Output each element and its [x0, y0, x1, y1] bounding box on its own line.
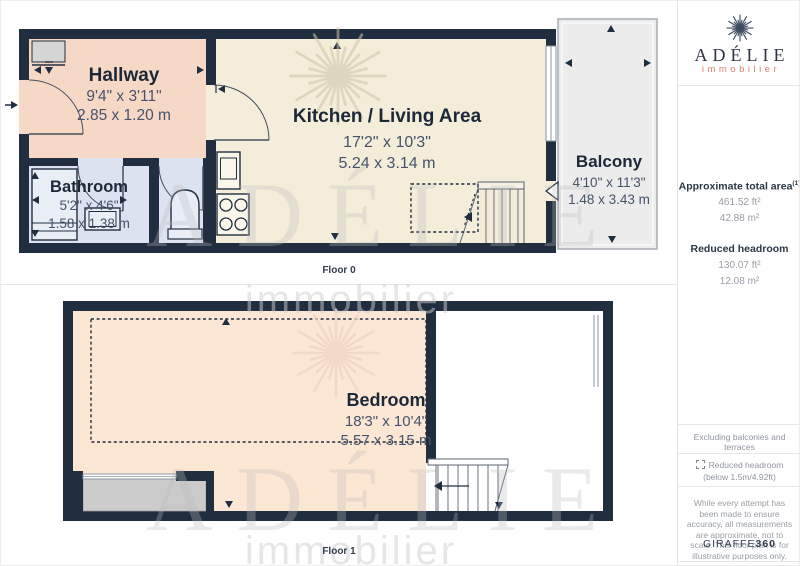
giraffe360-credit: GIRAFFE360 [678, 538, 800, 550]
reduced-headroom-legend: Reduced headroom [678, 460, 800, 470]
room-name: Kitchen / Living Area [236, 105, 538, 129]
kitchen-living-label: Kitchen / Living Area 17'2" x 10'3" 5.24… [236, 105, 538, 174]
exclusion-note: Excluding balconies and terraces [678, 432, 800, 452]
balcony-label: Balcony 4'10" x 11'3" 1.48 x 3.43 m [552, 151, 666, 208]
bedroom-label: Bedroom 18'3" x 10'4" 5.57 x 3.15 m [286, 389, 486, 450]
sidebar-divider [678, 486, 800, 487]
sidebar-divider [678, 85, 800, 86]
room-name: Bedroom [286, 389, 486, 412]
sidebar-divider [678, 561, 800, 562]
info-sidebar: ADÉLIE immobilier Approximate total area… [677, 1, 800, 566]
room-dim-imperial: 4'10" x 11'3" [552, 174, 666, 191]
reduced-headroom-sublabel: (below 1.5m/4.92ft) [678, 472, 800, 482]
room-dim-imperial: 18'3" x 10'4" [286, 412, 486, 431]
brand-logo [678, 13, 800, 48]
dashed-square-icon [696, 460, 705, 469]
hallway-label: Hallway 9'4" x 3'11" 2.85 x 1.20 m [31, 65, 217, 125]
floor1-tag: Floor 1 [1, 546, 677, 557]
room-dim-metric: 5.24 x 3.14 m [236, 153, 538, 174]
total-area-m: 42.88 m² [678, 213, 800, 224]
total-area-title: Approximate total area(1) [678, 180, 800, 193]
room-dim-metric: 5.57 x 3.15 m [286, 431, 486, 450]
floorplan-page: ADÉLIE immobilier ADÉLIE immobilier Ha [0, 0, 800, 566]
headroom-title: Reduced headroom [678, 243, 800, 255]
room-dim-metric: 1.48 x 3.43 m [552, 191, 666, 208]
room-name: Bathroom [29, 177, 149, 197]
brand-wordmark: ADÉLIE [678, 45, 800, 66]
headroom-m: 12.08 m² [678, 276, 800, 287]
sidebar-divider [678, 453, 800, 454]
floor0-tag: Floor 0 [1, 265, 677, 276]
room-name: Balcony [552, 151, 666, 172]
disclaimer-text: While every attempt has been made to ens… [678, 498, 800, 561]
footnote-marker: (1) [792, 180, 800, 187]
room-dim-imperial: 9'4" x 3'11" [31, 87, 217, 106]
headroom-ft: 130.07 ft² [678, 260, 800, 271]
room-name: Hallway [31, 65, 217, 87]
sidebar-divider [678, 424, 800, 425]
room-dim-metric: 1.58 x 1.38 m [29, 215, 149, 233]
brand-tagline: immobilier [678, 64, 800, 75]
room-dim-imperial: 5'2" x 4'6" [29, 197, 149, 215]
room-dim-imperial: 17'2" x 10'3" [236, 132, 538, 153]
bathroom-label: Bathroom 5'2" x 4'6" 1.58 x 1.38 m [29, 177, 149, 232]
total-area-ft: 461.52 ft² [678, 197, 800, 208]
snowflake-icon [725, 13, 755, 43]
room-dim-metric: 2.85 x 1.20 m [31, 106, 217, 125]
